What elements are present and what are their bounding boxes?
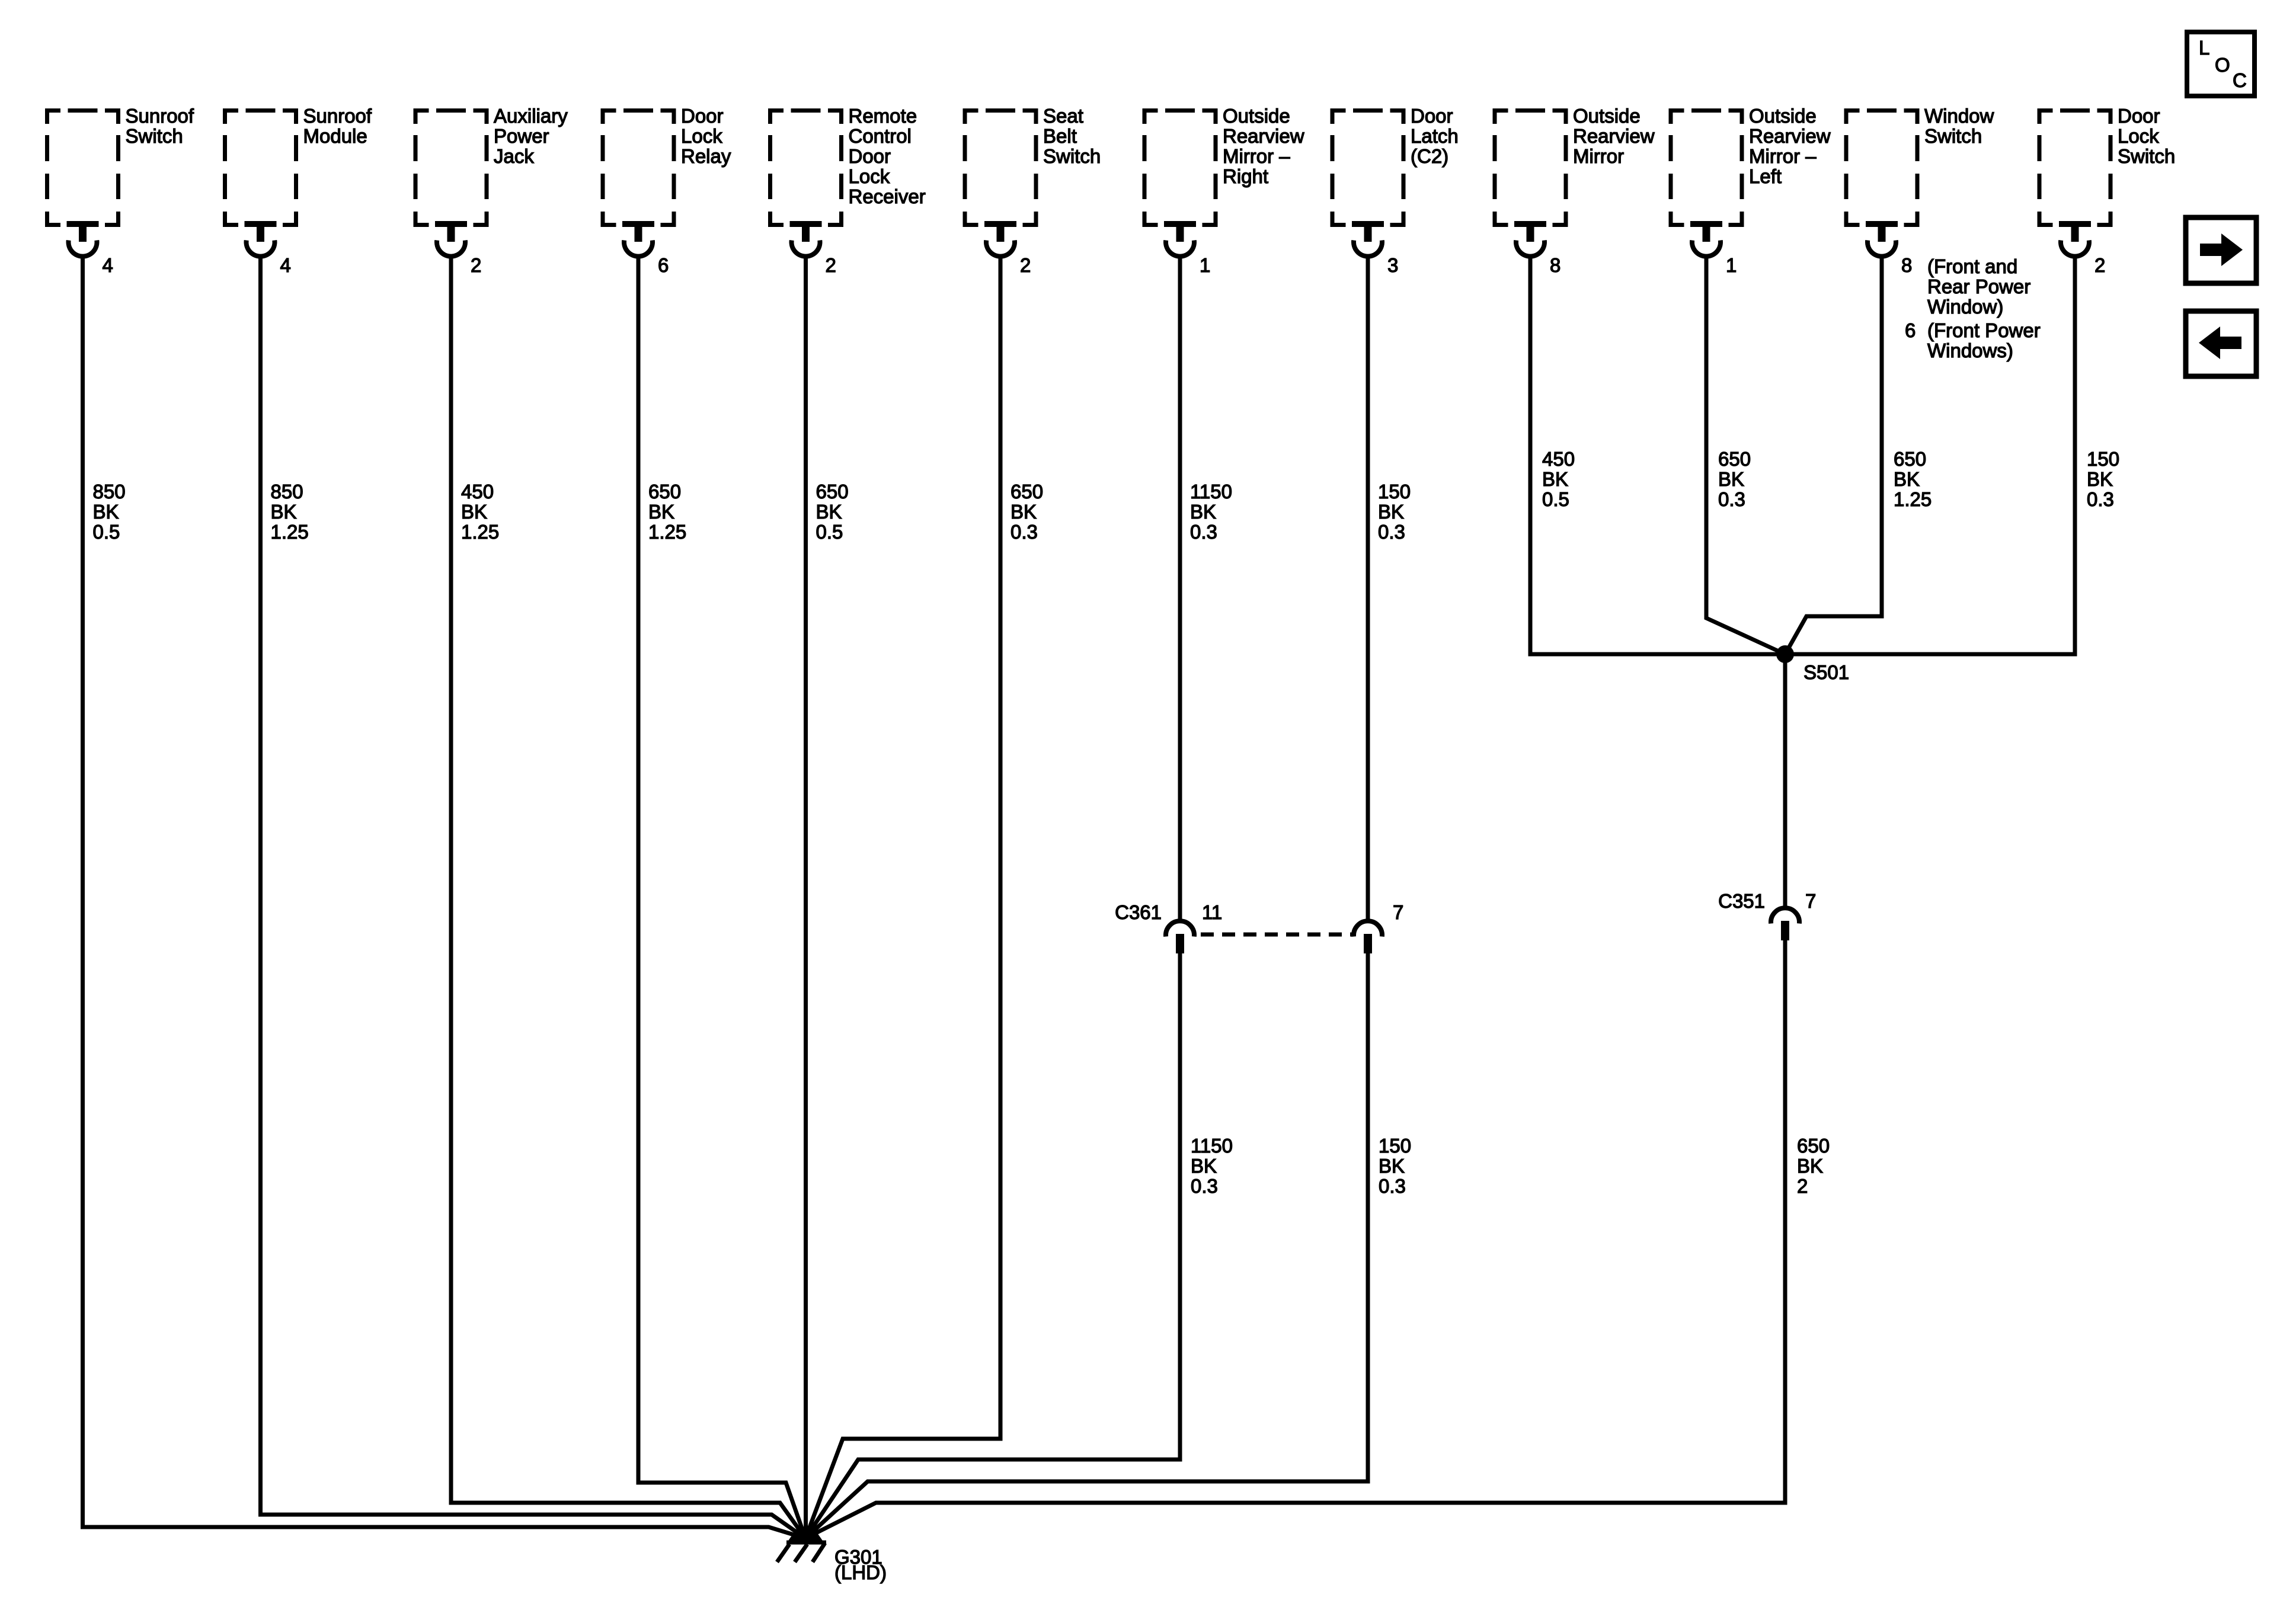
svg-text:850BK0.5: 850BK0.5: [93, 481, 126, 543]
svg-text:1150BK0.3: 1150BK0.3: [1190, 481, 1232, 543]
svg-text:RemoteControlDoorLockReceiver: RemoteControlDoorLockReceiver: [849, 105, 926, 207]
svg-text:650BK1.25: 650BK1.25: [1894, 448, 1932, 510]
svg-text:OutsideRearviewMirror –Right: OutsideRearviewMirror –Right: [1223, 105, 1304, 187]
svg-text:2: 2: [471, 254, 481, 276]
svg-text:650BK0.3: 650BK0.3: [1011, 481, 1043, 543]
svg-text:1: 1: [1200, 254, 1210, 276]
svg-text:C351: C351: [1718, 890, 1765, 912]
svg-text:DoorLatch(C2): DoorLatch(C2): [1411, 105, 1459, 167]
svg-text:150BK0.3: 150BK0.3: [1378, 481, 1411, 543]
svg-text:150BK0.3: 150BK0.3: [1379, 1135, 1411, 1197]
svg-text:450BK0.5: 450BK0.5: [1542, 448, 1575, 510]
svg-text:4: 4: [103, 254, 113, 276]
svg-text:2: 2: [1020, 254, 1031, 276]
svg-text:SunroofModule: SunroofModule: [303, 105, 372, 147]
svg-text:SunroofSwitch: SunroofSwitch: [126, 105, 194, 147]
svg-text:650BK0.3: 650BK0.3: [1718, 448, 1751, 510]
svg-text:SeatBeltSwitch: SeatBeltSwitch: [1043, 105, 1101, 167]
svg-text:C: C: [2233, 69, 2247, 91]
svg-text:DoorLockSwitch: DoorLockSwitch: [2118, 105, 2175, 167]
svg-text:AuxiliaryPowerJack: AuxiliaryPowerJack: [494, 105, 568, 167]
svg-text:OutsideRearviewMirror –Left: OutsideRearviewMirror –Left: [1749, 105, 1831, 187]
svg-text:6: 6: [1905, 319, 1916, 341]
svg-text:8: 8: [1550, 254, 1560, 276]
svg-text:1150BK0.3: 1150BK0.3: [1191, 1135, 1233, 1197]
svg-text:8: 8: [1901, 254, 1912, 276]
svg-text:7: 7: [1805, 890, 1816, 912]
svg-text:11: 11: [1202, 901, 1222, 923]
svg-text:2: 2: [826, 254, 836, 276]
svg-text:4: 4: [280, 254, 291, 276]
svg-text:650BK1.25: 650BK1.25: [648, 481, 686, 543]
svg-text:O: O: [2215, 54, 2230, 76]
svg-text:850BK1.25: 850BK1.25: [271, 481, 309, 543]
svg-text:650BK2: 650BK2: [1797, 1135, 1830, 1197]
svg-text:WindowSwitch: WindowSwitch: [1924, 105, 1994, 147]
svg-text:DoorLockRelay: DoorLockRelay: [681, 105, 731, 167]
svg-text:2: 2: [2094, 254, 2105, 276]
svg-text:150BK0.3: 150BK0.3: [2087, 448, 2119, 510]
svg-text:450BK1.25: 450BK1.25: [461, 481, 499, 543]
svg-text:7: 7: [1393, 901, 1403, 923]
svg-text:OutsideRearviewMirror: OutsideRearviewMirror: [1573, 105, 1655, 167]
svg-text:6: 6: [658, 254, 669, 276]
svg-text:(Front PowerWindows): (Front PowerWindows): [1927, 319, 2041, 361]
svg-text:G301(LHD): G301(LHD): [834, 1546, 887, 1583]
svg-text:650BK0.5: 650BK0.5: [816, 481, 849, 543]
svg-text:(Front andRear PowerWindow): (Front andRear PowerWindow): [1927, 255, 2030, 318]
svg-text:S501: S501: [1803, 661, 1849, 683]
svg-text:L: L: [2199, 37, 2209, 59]
svg-text:1: 1: [1726, 254, 1737, 276]
svg-text:3: 3: [1387, 254, 1398, 276]
svg-text:C361: C361: [1115, 901, 1162, 923]
